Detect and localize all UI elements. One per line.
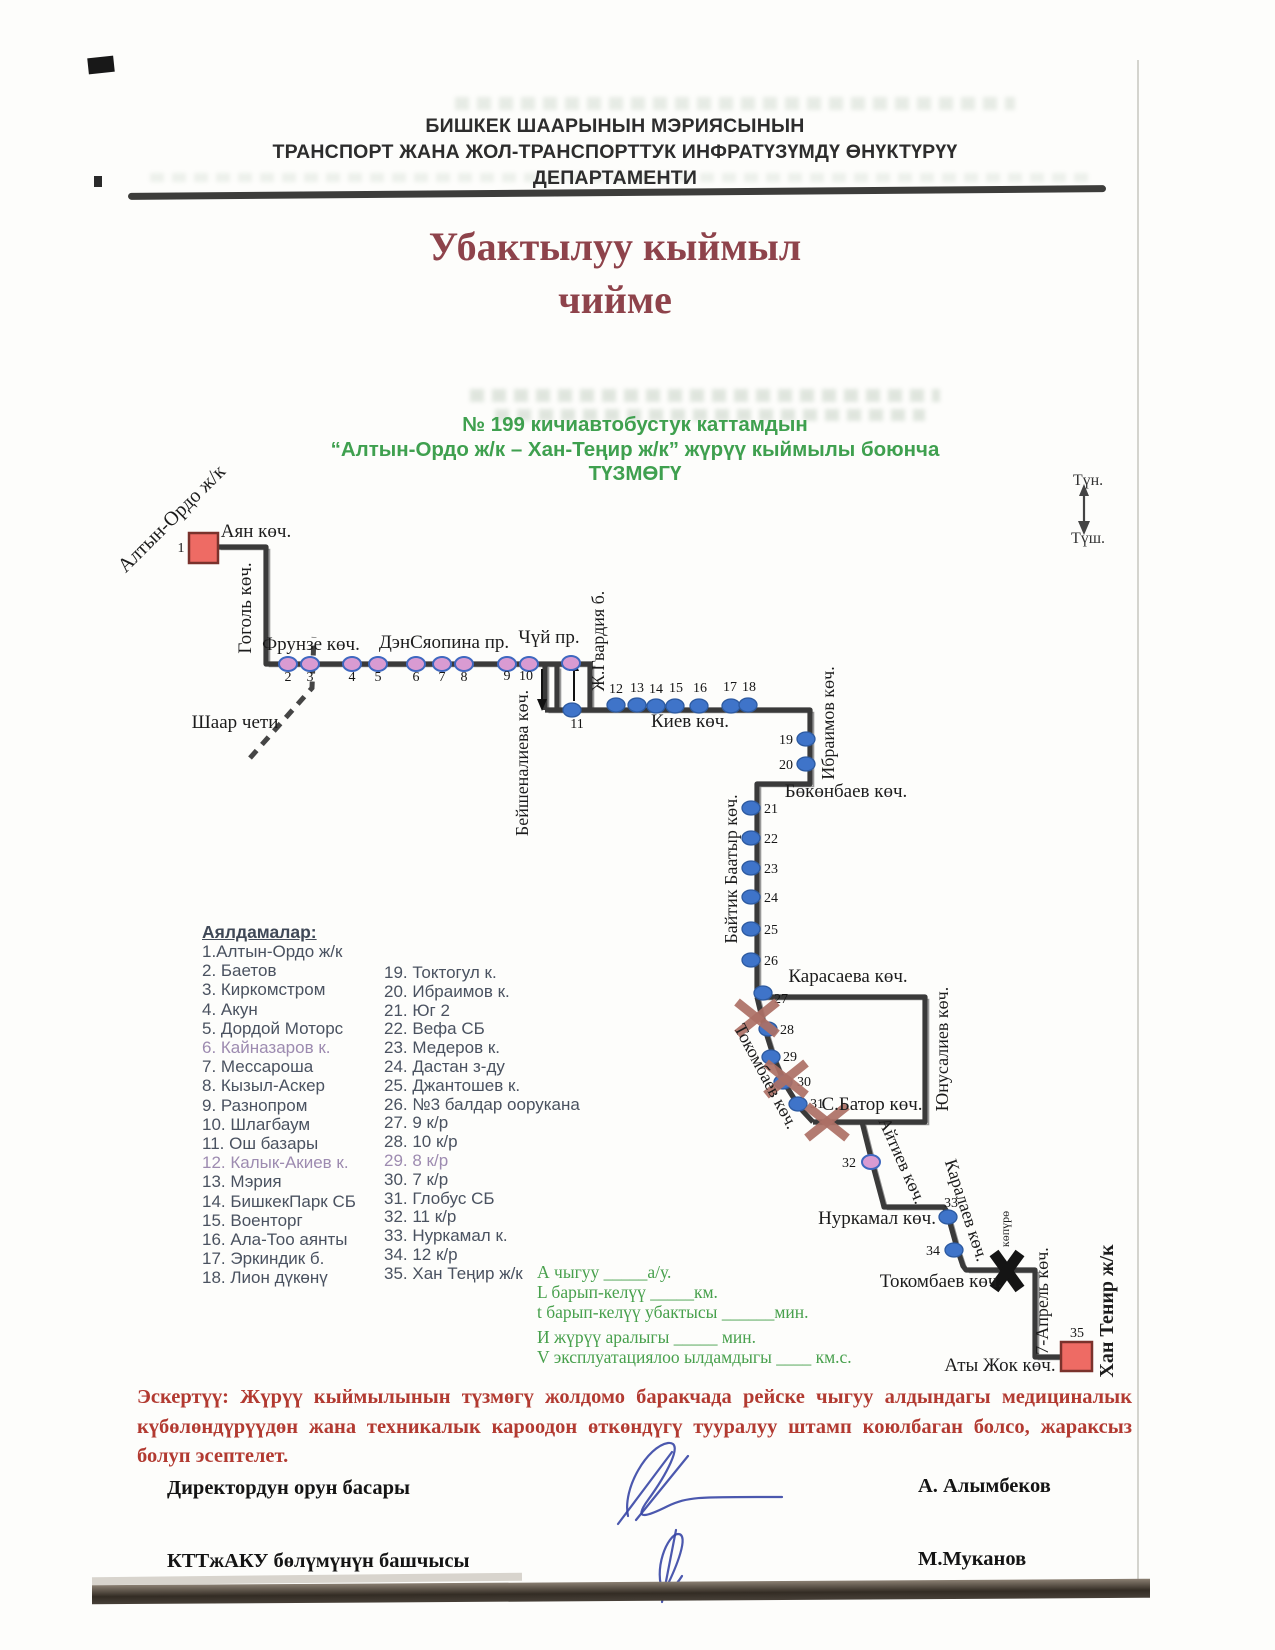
street-label: Чүй пр. — [518, 627, 579, 648]
stop-number: 28 — [780, 1023, 794, 1038]
warning-note-label: Эскертүү: — [137, 1386, 229, 1408]
street-label: Бөкөнбаев көч. — [785, 781, 908, 802]
stop-number: 25 — [764, 923, 778, 938]
stop-number: 5 — [375, 670, 382, 685]
street-label: Аты Жок көч. — [944, 1355, 1055, 1376]
terminal-number: 1 — [178, 541, 185, 556]
street-label: Хан Тенир ж/к — [1096, 1244, 1118, 1378]
title-line: чийме — [70, 273, 1160, 326]
stop-number: 4 — [349, 670, 356, 685]
document-title: Убактылуу кыймылчийме — [70, 220, 1160, 326]
terminal-square — [1061, 1342, 1092, 1371]
stop-marker — [742, 922, 760, 936]
stop-marker — [754, 986, 772, 1000]
stop-list-item: 15. Военторг — [202, 1211, 356, 1230]
stop-number: 9 — [504, 669, 511, 684]
stop-list-item: 12. Калык-Акиев к. — [202, 1153, 356, 1172]
signature-name: М.Муканов — [918, 1548, 1026, 1571]
department-header: БИШКЕК ШААРЫНЫН МЭРИЯСЫНЫНТРАНСПОРТ ЖАНА… — [70, 113, 1160, 191]
stop-list-item: 8. Кызыл-Аскер — [202, 1076, 356, 1095]
scanned-page: БИШКЕК ШААРЫНЫН МЭРИЯСЫНЫНТРАНСПОРТ ЖАНА… — [0, 0, 1275, 1650]
legend-line: И жүрүү аралыгы _____ мин. — [537, 1327, 852, 1347]
stop-marker — [742, 890, 760, 904]
header-line: ТРАНСПОРТ ЖАНА ЖОЛ-ТРАНСПОРТТУК ИНФРАТҮЗ… — [70, 139, 1160, 165]
stop-list-item: 4. Акун — [202, 1000, 356, 1019]
stop-marker — [563, 703, 581, 717]
stop-marker — [862, 1155, 880, 1169]
stop-list-item: 7. Мессароша — [202, 1057, 356, 1076]
stop-list-item: 1.Алтын-Ордо ж/к — [202, 942, 356, 961]
stop-list-item: 21. Юг 2 — [384, 1002, 580, 1021]
stop-list-item: 16. Ала-Тоо аянты — [202, 1230, 356, 1249]
stop-number: 7 — [439, 670, 446, 685]
stop-number: 23 — [764, 862, 778, 877]
signature-role: КТТжАКУ бөлүмүнүн башчысы — [167, 1550, 469, 1573]
subtitle-line: ТҮЗМӨГҮ — [110, 462, 1160, 487]
legend-line: L барып-келүү _____км. — [537, 1282, 852, 1302]
stop-list-item: 31. Глобус СБ — [384, 1190, 580, 1209]
street-label: көпүрө — [998, 1211, 1012, 1247]
stop-number: 17 — [723, 680, 737, 695]
stop-marker — [369, 657, 387, 671]
stop-marker — [742, 801, 760, 815]
compass-south-label: Түш. — [1071, 530, 1105, 547]
stop-list-item: 24. Дастан з-ду — [384, 1058, 580, 1077]
street-label: Байтик Баатыр көч. — [721, 794, 741, 943]
stop-list-item: 11. Ош базары — [202, 1134, 356, 1153]
street-label: Шаар чети — [192, 712, 279, 733]
legend-line: t барып-келүү убактысы ______мин. — [537, 1302, 852, 1322]
stop-marker — [797, 757, 815, 771]
stop-marker — [742, 831, 760, 845]
street-label: Киев көч. — [651, 711, 729, 732]
scan-corner-mark — [87, 56, 115, 75]
terminal-square — [189, 533, 218, 563]
city-boundary-dashes — [250, 637, 314, 758]
stop-number: 3 — [307, 670, 314, 685]
stop-number: 21 — [764, 802, 778, 817]
stop-list-item: 22. Вефа СБ — [384, 1020, 580, 1039]
legend-line: А чыгуу _____а/у. — [537, 1262, 852, 1282]
stop-list-item: 9. Разнопром — [202, 1096, 356, 1115]
warning-note-text: Жүрүү кыймылынын түзмөгү жолдомо баракча… — [137, 1386, 1132, 1467]
stop-number: 18 — [742, 680, 756, 695]
stop-marker — [739, 698, 757, 712]
stop-number: 12 — [609, 682, 623, 697]
stop-number: 2 — [285, 670, 292, 685]
stop-list-item: 10. Шлагбаум — [202, 1115, 356, 1134]
stop-number: 19 — [779, 733, 793, 748]
stop-list-item: 29. 8 к/р — [384, 1152, 580, 1171]
stop-list-item: 3. Киркомстром — [202, 980, 356, 999]
street-label: Нуркамал көч. — [818, 1208, 936, 1229]
stop-number: 11 — [570, 717, 583, 732]
stop-number: 22 — [764, 832, 778, 847]
metrics-legend: А чыгуу _____а/у.L барып-келүү _____км.t… — [537, 1262, 852, 1367]
bleedthrough-text-ghost — [470, 389, 940, 402]
stop-list-item: 14. БишкекПарк СБ — [202, 1192, 356, 1211]
stop-list-item: 18. Лион дүкөнү — [202, 1268, 356, 1287]
stop-marker — [797, 732, 815, 746]
stop-number: 24 — [764, 891, 778, 906]
street-label: Ибраимов көч. — [818, 666, 838, 779]
legend-line: V эксплуатациялоо ылдамдыгы ____ км.с. — [537, 1347, 852, 1367]
stop-marker — [279, 657, 297, 671]
street-label: Бейшеналиева көч. — [512, 690, 532, 836]
street-label: Фрунзе көч. — [262, 634, 360, 655]
stop-marker — [939, 1210, 957, 1224]
stop-marker — [742, 953, 760, 967]
stop-list-column-2: 19. Токтогул к.20. Ибраимов к.21. Юг 222… — [384, 964, 580, 1284]
header-line: БИШКЕК ШААРЫНЫН МЭРИЯСЫНЫН — [70, 113, 1160, 139]
stop-number: 26 — [764, 954, 778, 969]
street-label: Юнусалиев көч. — [932, 987, 952, 1111]
stop-list-column-1: 1.Алтын-Ордо ж/к2. Баетов3. Киркомстром4… — [202, 942, 356, 1288]
subtitle-line: “Алтын-Ордо ж/к – Хан-Теңир ж/к” жүрүү к… — [110, 438, 1160, 463]
stop-list-item: 26. №3 балдар оорукана — [384, 1096, 580, 1115]
stop-marker — [301, 657, 319, 671]
stop-number: 29 — [783, 1050, 797, 1065]
stop-marker — [562, 656, 580, 670]
street-label: С.Батор көч. — [821, 1094, 922, 1115]
stop-marker — [945, 1243, 963, 1257]
signature-name: А. Алымбеков — [918, 1475, 1051, 1498]
stop-number: 10 — [519, 669, 533, 684]
stop-number: 34 — [926, 1244, 940, 1259]
stop-marker — [455, 657, 473, 671]
terminal-number: 35 — [1070, 1326, 1084, 1341]
street-label: Гоголь көч. — [235, 562, 256, 653]
stop-list-item: 23. Медеров к. — [384, 1039, 580, 1058]
warning-note: Эскертүү: Жүрүү кыймылынын түзмөгү жолдо… — [137, 1383, 1132, 1472]
stop-marker — [433, 657, 451, 671]
stop-list-item: 20. Ибраимов к. — [384, 983, 580, 1002]
stop-list-item: 17. Эркиндик б. — [202, 1249, 356, 1268]
bleedthrough-text-ghost — [455, 97, 1015, 110]
stop-marker — [607, 698, 625, 712]
stop-list-item: 6. Кайназаров к. — [202, 1038, 356, 1057]
stop-list-item: 19. Токтогул к. — [384, 964, 580, 983]
street-label: Карасаева көч. — [788, 966, 907, 987]
stop-number: 13 — [630, 681, 644, 696]
stop-number: 20 — [779, 758, 793, 773]
subtitle-line: № 199 кичиавтобустук каттамдын — [110, 413, 1160, 438]
street-label: ДэнСяопина пр. — [379, 632, 509, 653]
stop-number: 14 — [649, 682, 663, 697]
stop-marker — [742, 861, 760, 875]
street-label: Токомбаев көч. — [880, 1271, 1002, 1292]
street-label: Ж.Гвардия б. — [588, 591, 608, 692]
stop-number: 8 — [461, 670, 468, 685]
stop-list-item: 30. 7 к/р — [384, 1171, 580, 1190]
stop-number: 32 — [842, 1156, 856, 1171]
stop-list-item: 27. 9 к/р — [384, 1114, 580, 1133]
stop-list-item: 33. Нуркамал к. — [384, 1227, 580, 1246]
route-subtitle: № 199 кичиавтобустук каттамдын“Алтын-Орд… — [110, 413, 1160, 487]
street-label: Аян көч. — [221, 521, 291, 542]
street-label: 7-Апрель көч. — [1032, 1247, 1052, 1355]
stop-list-item: 32. 11 к/р — [384, 1208, 580, 1227]
stop-number: 15 — [669, 681, 683, 696]
stop-number: 6 — [413, 670, 420, 685]
stop-list-item: 13. Мэрия — [202, 1172, 356, 1191]
stop-marker — [628, 698, 646, 712]
title-line: Убактылуу кыймыл — [70, 220, 1160, 273]
signature-role: Директордун орун басары — [167, 1477, 410, 1500]
stop-list-item: 25. Джантошев к. — [384, 1077, 580, 1096]
stop-number: 16 — [693, 681, 707, 696]
stop-list-heading: Аялдамалар: — [202, 922, 317, 943]
stop-list-item: 28. 10 к/р — [384, 1133, 580, 1152]
stop-list-item: 5. Дордой Моторс — [202, 1019, 356, 1038]
stop-marker — [407, 657, 425, 671]
stop-marker — [343, 657, 361, 671]
stop-list-item: 2. Баетов — [202, 961, 356, 980]
